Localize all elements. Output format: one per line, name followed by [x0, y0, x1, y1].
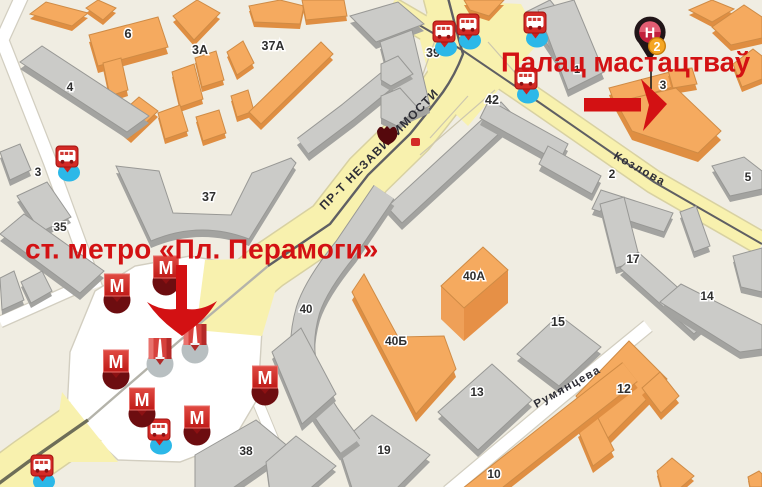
svg-text:5: 5 — [745, 170, 752, 184]
svg-text:37А: 37А — [262, 39, 285, 53]
svg-text:38: 38 — [239, 444, 253, 458]
svg-text:Палац мастацтваў: Палац мастацтваў — [501, 47, 751, 78]
svg-text:М: М — [258, 368, 273, 388]
svg-text:М: М — [110, 276, 125, 296]
svg-text:10: 10 — [487, 467, 501, 481]
svg-text:6: 6 — [124, 26, 131, 41]
svg-text:3А: 3А — [192, 43, 208, 57]
svg-text:42: 42 — [485, 93, 499, 107]
svg-text:3: 3 — [35, 165, 42, 179]
svg-text:40Б: 40Б — [385, 334, 407, 348]
svg-text:14: 14 — [700, 289, 714, 303]
svg-text:12: 12 — [617, 382, 631, 396]
svg-text:М: М — [135, 390, 150, 410]
svg-text:4: 4 — [67, 80, 74, 94]
svg-text:37: 37 — [202, 190, 216, 204]
svg-text:13: 13 — [470, 385, 484, 399]
svg-text:35: 35 — [53, 220, 67, 234]
svg-text:ст. метро «Пл. Перамоги»: ст. метро «Пл. Перамоги» — [25, 234, 378, 265]
svg-text:19: 19 — [377, 443, 391, 457]
svg-text:2: 2 — [609, 167, 616, 181]
svg-text:40: 40 — [300, 304, 313, 316]
svg-text:М: М — [109, 352, 124, 372]
svg-text:М: М — [190, 408, 205, 428]
svg-text:40А: 40А — [463, 269, 485, 283]
svg-text:17: 17 — [626, 252, 640, 266]
svg-text:15: 15 — [551, 315, 565, 329]
svg-text:3: 3 — [660, 78, 667, 92]
